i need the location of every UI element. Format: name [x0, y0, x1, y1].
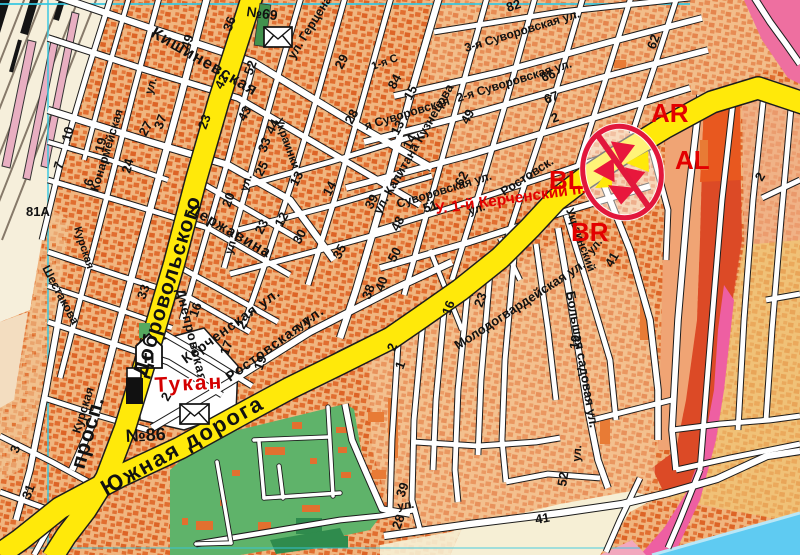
svg-text:52: 52 [554, 471, 571, 488]
svg-text:ул.: ул. [397, 499, 415, 513]
svg-text:№86: №86 [125, 424, 166, 446]
svg-text:19: 19 [566, 334, 583, 351]
svg-text:BL: BL [549, 165, 584, 195]
svg-text:AL: AL [675, 145, 710, 175]
svg-text:AR: AR [651, 98, 689, 128]
svg-text:ул.: ул. [571, 445, 584, 463]
svg-text:41: 41 [534, 510, 551, 527]
svg-text:81А: 81А [26, 204, 50, 219]
